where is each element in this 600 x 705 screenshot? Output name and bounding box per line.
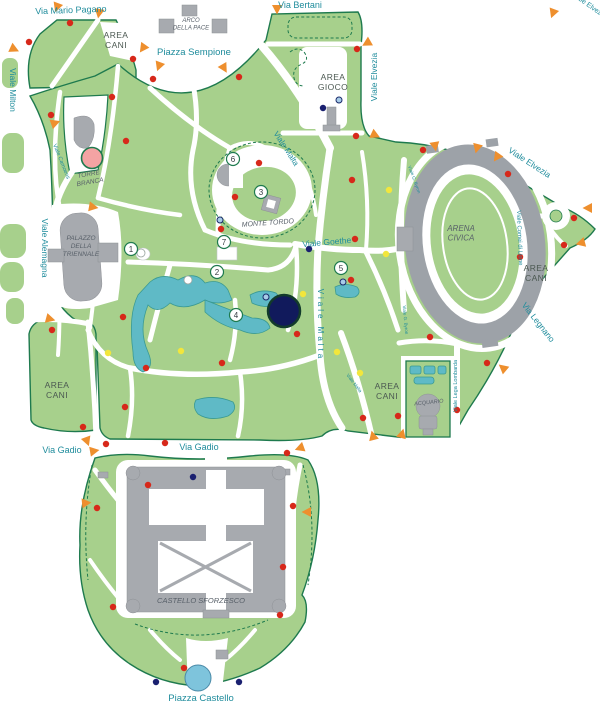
area-cani-east-label: AREACANI <box>524 263 549 283</box>
red-dot <box>256 160 262 166</box>
red-dot <box>150 76 156 82</box>
yellow-dot <box>357 370 363 376</box>
entrance-triangle <box>81 436 94 448</box>
numbered-marker-1: 1 <box>125 243 138 256</box>
red-dot <box>294 331 300 337</box>
red-dot <box>122 404 128 410</box>
entrance-triangle <box>546 8 559 20</box>
red-dot <box>354 46 360 52</box>
entrance-triangle <box>583 203 593 213</box>
viale-malta-south-label: Viale Malta <box>316 289 325 361</box>
yellow-dot <box>178 348 184 354</box>
viale-alemagna-label: Viale Alemagna <box>40 219 50 278</box>
red-dot <box>290 503 296 509</box>
viale-elvezia-north-label: Viale Elvezia <box>369 52 379 101</box>
red-dot <box>236 74 242 80</box>
big-navy-pond <box>268 295 300 327</box>
red-dot <box>360 415 366 421</box>
lightblue-dot <box>217 217 223 223</box>
marker-number: 3 <box>259 188 264 197</box>
yellow-dot <box>386 187 392 193</box>
via-gadio-west-label: Via Gadio <box>42 445 81 455</box>
red-dot <box>110 604 116 610</box>
red-dot <box>348 277 354 283</box>
arena-civica-label: ARENACIVICA <box>446 224 475 243</box>
red-dot <box>120 314 126 320</box>
marker-number: 5 <box>339 264 344 273</box>
marker-number: 6 <box>231 155 236 164</box>
piazza-castello-label: Piazza Castello <box>168 693 233 704</box>
park-southwest-block <box>29 319 96 432</box>
small-pond-east <box>335 285 359 298</box>
via-bertani-label: Via Bertani <box>278 0 322 10</box>
navy-dot <box>236 679 242 685</box>
red-dot <box>284 450 290 456</box>
arco-block-top <box>182 5 197 16</box>
green-blob <box>0 262 24 292</box>
numbered-marker-6: 6 <box>227 153 240 166</box>
lightblue-dot <box>336 97 342 103</box>
entrance-triangle <box>293 442 305 455</box>
numbered-marker-5: 5 <box>335 262 348 275</box>
red-dot <box>420 147 426 153</box>
lightblue-dot <box>340 279 346 285</box>
entrance-triangle <box>89 445 100 456</box>
red-dot <box>109 94 115 100</box>
marker-number: 4 <box>234 311 239 320</box>
red-dot <box>505 171 511 177</box>
arco-block-left <box>159 19 174 33</box>
yellow-dot <box>105 350 111 356</box>
marker-number: 2 <box>215 268 220 277</box>
navy-dot <box>153 679 159 685</box>
entrance-triangle <box>8 43 21 56</box>
white-dot <box>137 249 145 257</box>
red-dot <box>352 236 358 242</box>
red-dot <box>181 665 187 671</box>
red-dot <box>277 612 283 618</box>
area-cani-south-label: AREACANI <box>375 381 400 401</box>
south-pond <box>194 397 234 418</box>
red-dot <box>145 482 151 488</box>
entrance-triangle <box>218 62 231 75</box>
castello-sforzesco-label: CASTELLO SFORZESCO <box>157 596 245 605</box>
numbered-marker-7: 7 <box>218 236 231 249</box>
marker-number: 1 <box>129 245 134 254</box>
red-dot <box>80 424 86 430</box>
red-dot <box>67 20 73 26</box>
navy-dot <box>190 474 196 480</box>
via-mario-pagano-label: Via Mario Pagano <box>35 4 107 16</box>
red-dot <box>48 112 54 118</box>
red-dot <box>395 413 401 419</box>
entrance-triangle <box>152 61 165 73</box>
white-dot <box>184 276 192 284</box>
red-dot <box>123 138 129 144</box>
green-blob <box>0 224 26 258</box>
map-canvas: 1234567 Via Mario PaganoPiazza SempioneV… <box>0 0 600 705</box>
lightblue-dot <box>263 294 269 300</box>
green-blob <box>2 133 24 173</box>
piazza-sempione-label: Piazza Sempione <box>157 47 231 58</box>
viale-milton-label: Viale Milton <box>8 68 18 112</box>
red-dot <box>130 56 136 62</box>
red-dot <box>219 360 225 366</box>
red-dot <box>218 226 224 232</box>
via-gadio-center-label: Via Gadio <box>179 442 218 452</box>
numbered-marker-3: 3 <box>255 186 268 199</box>
arco-della-pace-label: ARCODELLA PACE <box>173 18 210 32</box>
yellow-dot <box>383 251 389 257</box>
red-dot <box>349 177 355 183</box>
red-dot <box>26 39 32 45</box>
red-dot <box>162 440 168 446</box>
torre-branca-tower <box>82 148 103 169</box>
area-gioco-structure <box>327 107 336 127</box>
arco-block-right <box>212 19 227 33</box>
area-cani-southwest-label: AREACANI <box>45 380 70 400</box>
red-dot <box>143 365 149 371</box>
yellow-dot <box>300 291 306 297</box>
red-dot <box>427 334 433 340</box>
red-dot <box>571 215 577 221</box>
numbered-marker-4: 4 <box>230 309 243 322</box>
entrance-triangle <box>496 361 510 375</box>
navy-dot <box>320 105 326 111</box>
red-dot <box>484 360 490 366</box>
area-cani-northwest-label: AREACANI <box>104 30 129 50</box>
viale-elvezia-corner-label: Viale Elvezia <box>570 0 600 20</box>
red-dot <box>103 441 109 447</box>
red-dot <box>94 505 100 511</box>
parco-sempione-map: 1234567 Via Mario PaganoPiazza SempioneV… <box>0 0 600 705</box>
viale-lega-lombarda-label: Viale Lega Lombarda <box>453 359 459 412</box>
yellow-dot <box>334 349 340 355</box>
area-gioco-label: AREAGIOCO <box>318 72 348 92</box>
green-blob <box>6 298 24 324</box>
red-dot <box>232 194 238 200</box>
marker-number: 7 <box>222 238 227 247</box>
red-dot <box>49 327 55 333</box>
red-dot <box>353 133 359 139</box>
arena-west-entrance <box>397 227 413 251</box>
red-dot <box>561 242 567 248</box>
piazza-castello-fountain <box>185 665 211 691</box>
numbered-marker-2: 2 <box>211 266 224 279</box>
red-dot <box>280 564 286 570</box>
